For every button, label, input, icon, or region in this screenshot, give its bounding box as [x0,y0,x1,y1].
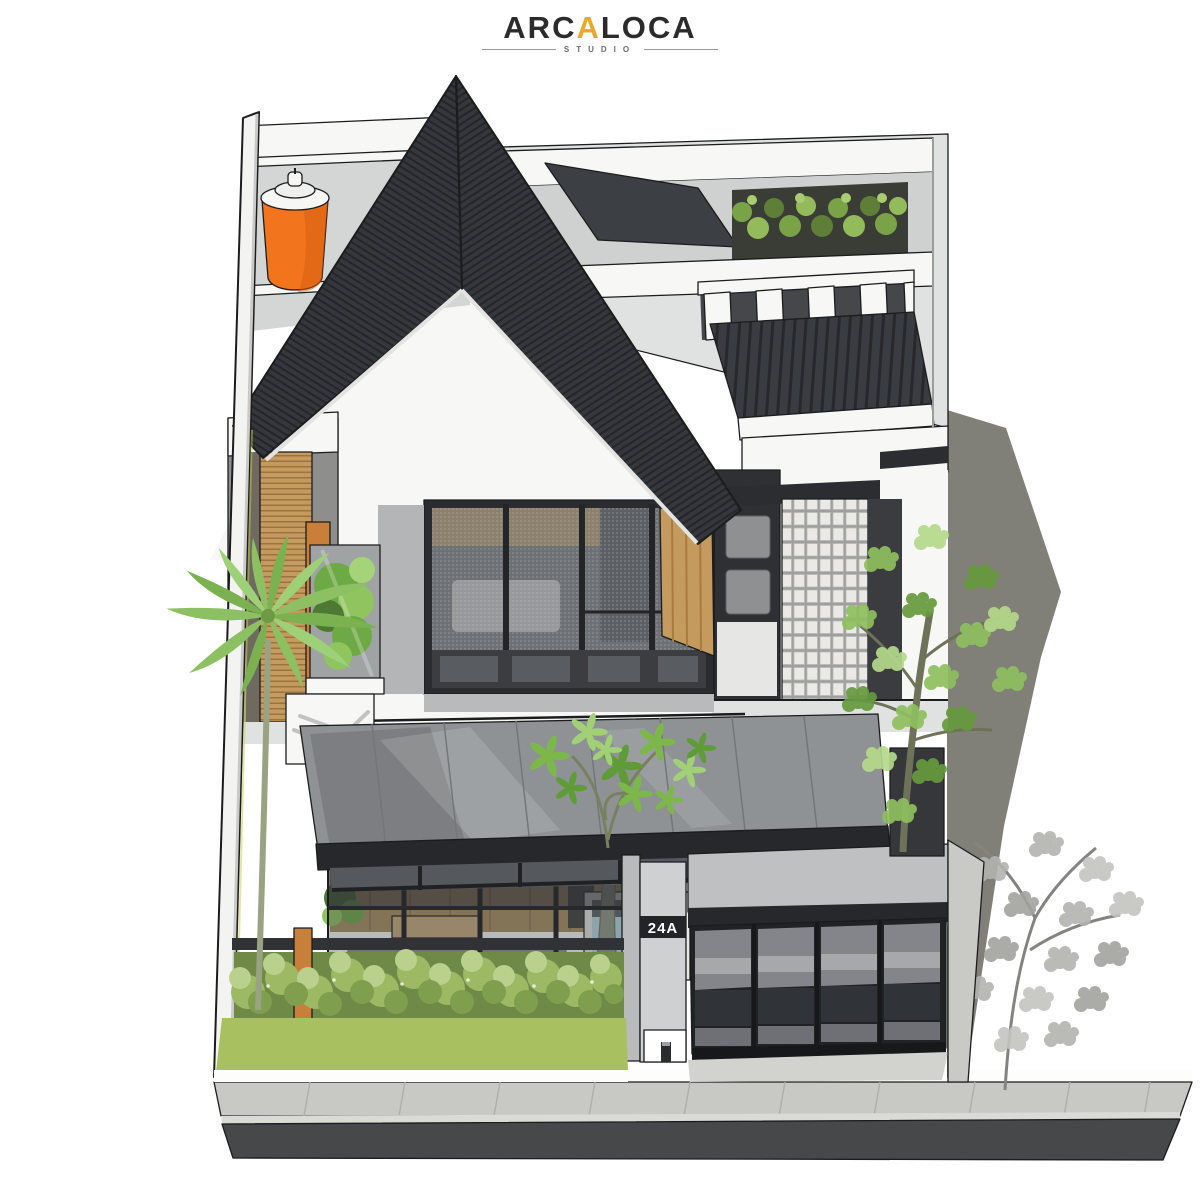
street-ground [214,1070,1192,1160]
wall-strip [378,505,424,694]
roof-garden [732,182,908,264]
appliance-upper [726,516,770,558]
architectural-render: ARCALOCA STUDIO [0,0,1200,1200]
sidewalk [214,1082,1192,1116]
appliance-lower [726,570,770,614]
house-number: 24A [648,920,679,937]
entry-pillar: 24A [622,855,686,1062]
logo-part2: LOCA [601,10,697,45]
logo-subtitle-row: STUDIO [0,45,1200,54]
lawn [216,1018,628,1072]
glass-block-wall [782,499,868,700]
logo-accent-letter: A [576,10,600,45]
bollard-lamp [661,1042,671,1062]
logo-wordmark: ARCALOCA [0,12,1200,43]
logo-subtitle: STUDIO [564,45,636,54]
logo-part1: ARC [503,10,576,45]
road [222,1119,1180,1160]
house-illustration: 24A [0,0,1200,1200]
garden-fence [232,938,624,950]
corrugated-roof [710,312,932,418]
logo-rule-right [644,49,718,50]
spandrel [424,694,714,712]
arcaloca-logo: ARCALOCA STUDIO [0,12,1200,54]
garage-door-panels [695,920,940,1050]
tank-cap [288,172,302,186]
logo-rule-left [482,49,556,50]
